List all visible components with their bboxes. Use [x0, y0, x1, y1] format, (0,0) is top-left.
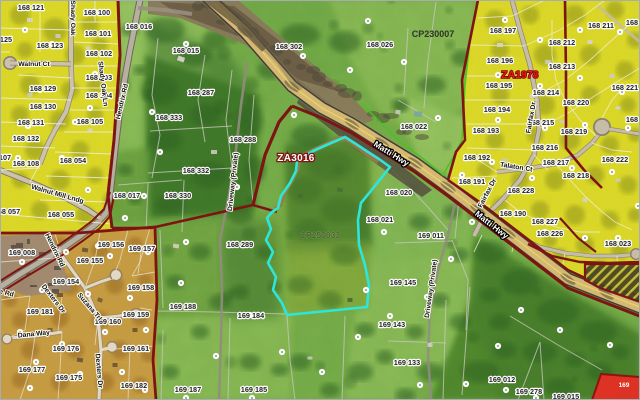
svg-text:168 108: 168 108	[13, 159, 39, 168]
svg-text:168 227: 168 227	[532, 217, 558, 226]
svg-text:168: 168	[626, 18, 638, 27]
svg-text:168 020: 168 020	[386, 188, 412, 197]
svg-text:168 191: 168 191	[459, 177, 485, 186]
svg-text:68 057: 68 057	[0, 207, 20, 216]
svg-text:168 221: 168 221	[612, 83, 638, 92]
svg-text:168 302: 168 302	[276, 42, 302, 51]
svg-text:169 155: 169 155	[77, 256, 103, 265]
svg-text:168 288: 168 288	[230, 135, 256, 144]
svg-text:168 289: 168 289	[227, 240, 253, 249]
svg-text:169 161: 169 161	[123, 344, 149, 353]
svg-text:168 211: 168 211	[588, 21, 614, 30]
svg-text:168 022: 168 022	[401, 122, 427, 131]
svg-text:169 181: 169 181	[27, 307, 53, 316]
svg-text:169 188: 169 188	[170, 302, 196, 311]
svg-text:168 287: 168 287	[188, 88, 214, 97]
svg-text:168 214: 168 214	[533, 88, 560, 97]
svg-text:168 130: 168 130	[30, 102, 56, 111]
svg-text:107: 107	[0, 153, 11, 162]
svg-text:168 017: 168 017	[114, 191, 140, 200]
svg-text:168 195: 168 195	[486, 81, 512, 90]
svg-text:168 015: 168 015	[173, 46, 199, 55]
svg-text:168 101: 168 101	[85, 29, 111, 38]
svg-text:125: 125	[0, 35, 12, 44]
svg-text:169 015: 169 015	[553, 392, 579, 400]
svg-text:168 219: 168 219	[561, 127, 587, 136]
svg-text:169 159: 169 159	[123, 310, 149, 319]
svg-text:168 129: 168 129	[30, 84, 56, 93]
svg-text:CP230007: CP230007	[412, 29, 455, 39]
svg-text:169 187: 169 187	[175, 385, 201, 394]
svg-text:169 184: 169 184	[238, 311, 265, 320]
svg-text:168 193: 168 193	[473, 126, 499, 135]
svg-text:169 145: 169 145	[390, 278, 416, 287]
svg-text:169 158: 169 158	[128, 283, 154, 292]
svg-text:ZA1978: ZA1978	[501, 70, 539, 81]
svg-text:169 008: 169 008	[9, 248, 35, 257]
svg-text:169 185: 169 185	[241, 385, 267, 394]
svg-text:168 333: 168 333	[156, 113, 182, 122]
svg-text:169 175: 169 175	[56, 373, 82, 382]
svg-text:168 016: 168 016	[126, 22, 152, 31]
svg-text:168 100: 168 100	[84, 8, 110, 17]
svg-text:168 104: 168 104	[86, 91, 113, 100]
svg-text:169 157: 169 157	[129, 244, 155, 253]
svg-text:168 196: 168 196	[487, 56, 513, 65]
svg-text:169 133: 169 133	[394, 358, 420, 367]
svg-text:168 055: 168 055	[48, 210, 74, 219]
svg-text:Walnut Ct: Walnut Ct	[18, 61, 50, 68]
svg-text:168 212: 168 212	[549, 38, 575, 47]
svg-text:CP250033: CP250033	[300, 230, 340, 240]
svg-text:169 012: 169 012	[489, 375, 515, 384]
svg-text:168 213: 168 213	[549, 62, 575, 71]
svg-text:168: 168	[626, 115, 638, 124]
svg-text:168 132: 168 132	[13, 134, 39, 143]
svg-text:168 026: 168 026	[367, 40, 393, 49]
svg-text:168 226: 168 226	[537, 229, 563, 238]
svg-text:168 131: 168 131	[18, 118, 44, 127]
svg-text:169 011: 169 011	[418, 231, 444, 240]
svg-text:168 197: 168 197	[490, 26, 516, 35]
svg-text:168 216: 168 216	[532, 143, 558, 152]
svg-text:ZA3016: ZA3016	[277, 153, 315, 164]
svg-text:169 143: 169 143	[379, 320, 405, 329]
svg-text:168 218: 168 218	[563, 171, 589, 180]
svg-text:Shady Oak: Shady Oak	[69, 0, 76, 35]
svg-text:168 332: 168 332	[183, 166, 209, 175]
svg-text:169 182: 169 182	[121, 381, 147, 390]
svg-text:168 228: 168 228	[508, 186, 534, 195]
svg-text:168 192: 168 192	[464, 153, 490, 162]
svg-text:168 330: 168 330	[165, 191, 191, 200]
svg-text:168 190: 168 190	[500, 209, 526, 218]
svg-text:168 217: 168 217	[543, 158, 569, 167]
svg-text:169 156: 169 156	[98, 240, 124, 249]
svg-text:168 021: 168 021	[367, 215, 393, 224]
svg-text:168 222: 168 222	[602, 155, 628, 164]
svg-text:168 194: 168 194	[484, 105, 511, 114]
svg-text:168 121: 168 121	[18, 3, 44, 12]
svg-text:169 177: 169 177	[19, 365, 45, 374]
svg-text:168 023: 168 023	[605, 239, 631, 248]
svg-text:169 278: 169 278	[516, 387, 542, 396]
svg-text:168 054: 168 054	[60, 156, 87, 165]
svg-text:168 123: 168 123	[37, 41, 63, 50]
svg-text:169 154: 169 154	[53, 277, 80, 286]
svg-text:168 102: 168 102	[86, 49, 112, 58]
svg-text:168 220: 168 220	[563, 98, 589, 107]
svg-text:169 176: 169 176	[53, 344, 79, 353]
svg-text:168 105: 168 105	[77, 117, 103, 126]
